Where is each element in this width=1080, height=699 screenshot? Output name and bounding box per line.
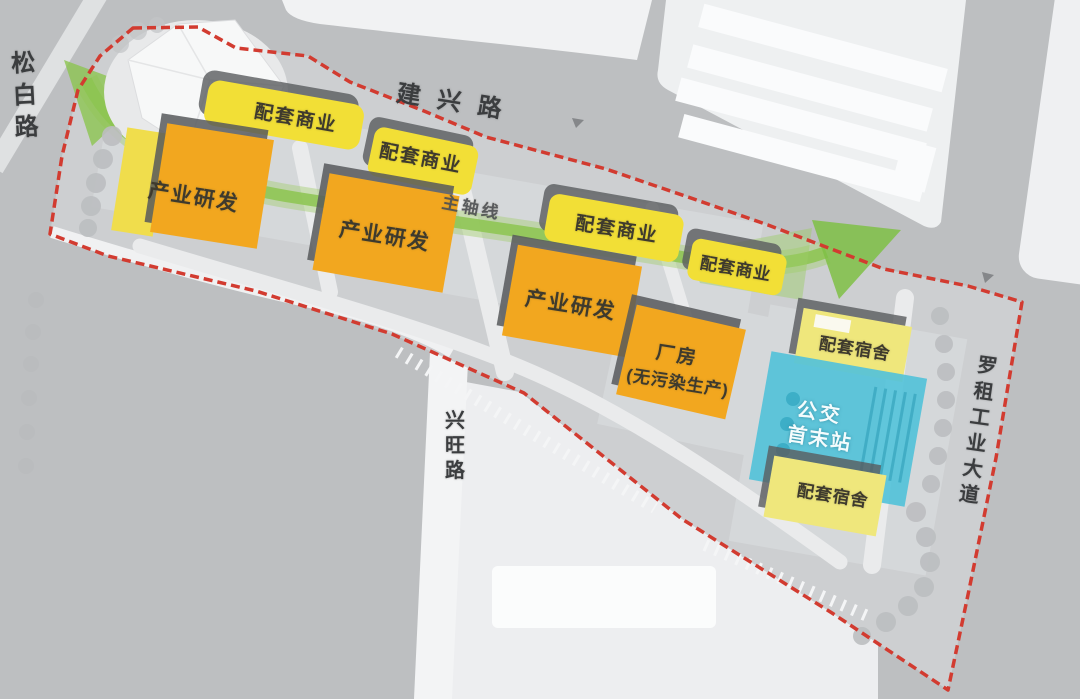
road-label-xingwang: 兴旺路 xyxy=(439,410,468,485)
site-plan-canvas: 松白路 建兴路 兴旺路 罗租工业大道 主轴线 配套商业 配套商业 产业研发 产业… xyxy=(0,0,1080,699)
parcel-bottom-building xyxy=(492,566,716,628)
road-label-songbai: 松白路 xyxy=(2,49,42,147)
site-plan-drawing xyxy=(0,0,1080,699)
